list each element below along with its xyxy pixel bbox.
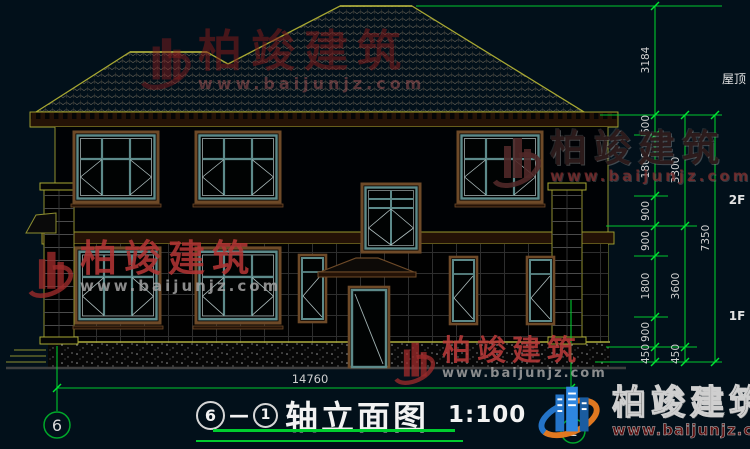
company-logo: 柏竣建筑 www.baijunjz.com — [536, 380, 750, 444]
left-side-canopy — [26, 213, 56, 233]
dim-total-width: 14760 — [292, 372, 329, 386]
company-logo-brand: 柏竣建筑 — [612, 386, 750, 420]
plinth — [48, 342, 610, 368]
stair-window — [362, 184, 420, 252]
level-labels: 屋顶 2F 1F — [722, 72, 746, 323]
svg-text:1800: 1800 — [640, 152, 652, 179]
hip-roof — [36, 6, 584, 112]
title-axis-circle-right: 1 — [253, 403, 278, 428]
title-underline-secondary — [196, 440, 463, 442]
company-logo-icon — [536, 380, 608, 444]
svg-text:1800: 1800 — [640, 273, 652, 300]
svg-text:600: 600 — [640, 115, 652, 135]
right-dimension-texts: 3184 600 1800 900 900 1800 900 450 3300 … — [640, 46, 712, 364]
label-1f: 1F — [729, 309, 746, 323]
svg-text:7350: 7350 — [700, 225, 712, 252]
belt-course — [42, 232, 614, 244]
svg-text:3184: 3184 — [640, 46, 652, 73]
label-roof: 屋顶 — [722, 72, 746, 86]
svg-text:3600: 3600 — [670, 273, 682, 300]
axis-bubble-left: 6 — [44, 412, 70, 438]
title-dash: — — [229, 403, 249, 427]
company-logo-url: www.baijunjz.com — [612, 423, 750, 438]
svg-text:450: 450 — [670, 344, 682, 364]
left-garden-steps — [6, 350, 46, 362]
title-underline-primary — [213, 429, 455, 432]
title-axis-circle-left: 6 — [196, 401, 225, 430]
svg-text:900: 900 — [640, 322, 652, 342]
cad-elevation-screenshot: 14760 3184 600 1800 900 900 1800 900 450… — [0, 0, 750, 449]
label-2f: 2F — [729, 193, 746, 207]
svg-text:900: 900 — [640, 231, 652, 251]
svg-text:900: 900 — [640, 201, 652, 221]
svg-text:3300: 3300 — [670, 157, 682, 184]
svg-text:6: 6 — [52, 416, 62, 435]
eave-fascia — [30, 112, 618, 127]
title-scale: 1:100 — [448, 402, 526, 428]
svg-text:450: 450 — [640, 344, 652, 364]
